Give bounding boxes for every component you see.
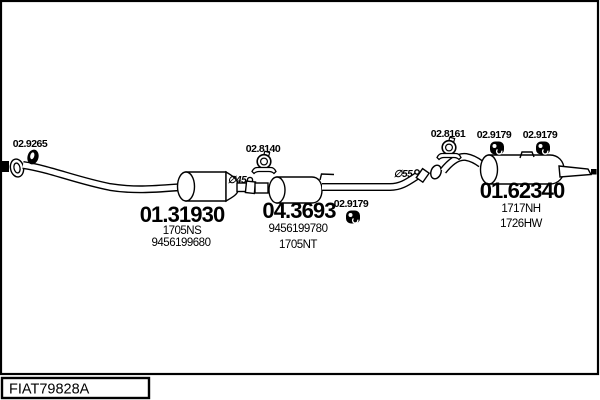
front-muffler-ref2: 9456199680 bbox=[152, 237, 211, 249]
rear-muffler-ref2: 1726HW bbox=[500, 218, 542, 230]
part-number-gasket: 02.9265 bbox=[13, 138, 48, 150]
drawing-code-box: FIAT79828A bbox=[2, 378, 149, 398]
part-number-hanger-rear-left: 02.9179 bbox=[477, 129, 512, 141]
hanger-icon-rear-right bbox=[536, 142, 550, 155]
catalytic-converter-ref1: 9456199780 bbox=[269, 223, 328, 235]
rear-muffler-ref1: 1717NH bbox=[501, 203, 540, 215]
tailpipe-end-marker bbox=[591, 169, 597, 175]
part-number-hanger-rear-right: 02.9179 bbox=[523, 129, 558, 141]
diameter-label-55: ∅55 bbox=[394, 169, 413, 180]
drawing-code: FIAT79828A bbox=[9, 382, 90, 398]
catalytic-converter-ref2: 1705NT bbox=[279, 239, 317, 251]
exhaust-parts-diagram: 02.9265 01.31930 1705NS 9456199680 02.81… bbox=[0, 0, 600, 400]
part-number-catalytic-converter: 04.3693 bbox=[262, 198, 336, 223]
part-number-clamp-rear: 02.8161 bbox=[431, 128, 466, 140]
diameter-label-45: ∅45 bbox=[228, 175, 247, 186]
part-number-rear-muffler: 01.62340 bbox=[480, 178, 565, 203]
part-number-hanger-mid: 02.9179 bbox=[334, 198, 369, 210]
part-number-front-muffler: 01.31930 bbox=[140, 202, 225, 227]
part-number-clamp-mid: 02.8140 bbox=[246, 143, 281, 155]
front-muffler-ref1: 1705NS bbox=[163, 225, 202, 237]
hanger-icon-rear-left bbox=[490, 142, 504, 155]
hanger-icon-mid bbox=[346, 211, 360, 224]
